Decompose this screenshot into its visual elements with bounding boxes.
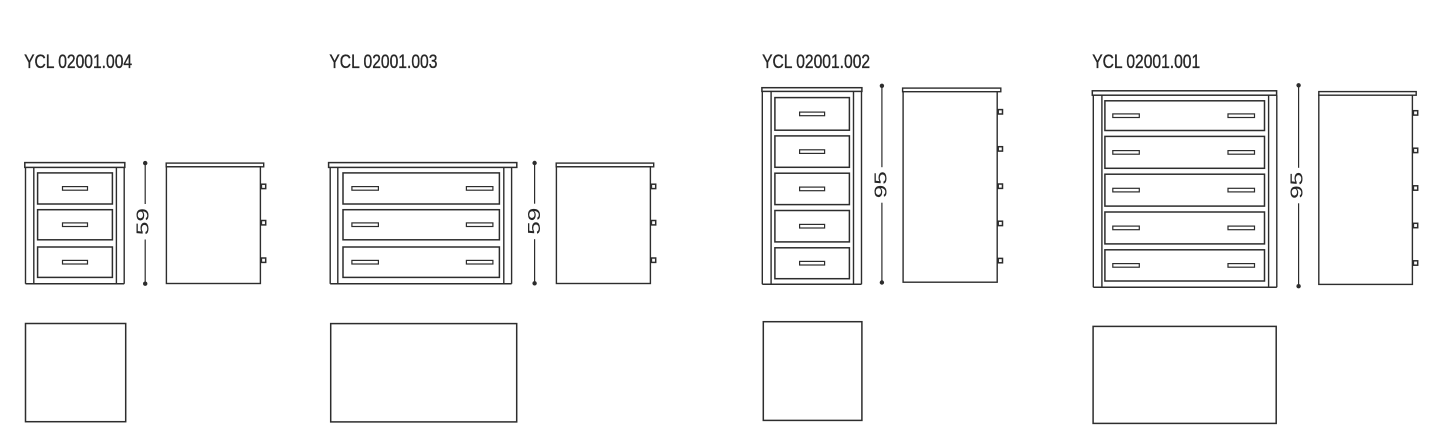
svg-text:YCL 02001.004: YCL 02001.004 <box>24 51 132 73</box>
svg-text:95: 95 <box>870 171 890 198</box>
svg-text:95: 95 <box>1287 172 1307 199</box>
svg-text:YCL 02001.003: YCL 02001.003 <box>329 51 437 73</box>
svg-text:YCL 02001.001: YCL 02001.001 <box>1092 51 1200 73</box>
svg-text:59: 59 <box>132 208 152 235</box>
svg-text:59: 59 <box>524 208 544 235</box>
svg-text:YCL 02001.002: YCL 02001.002 <box>762 51 870 73</box>
